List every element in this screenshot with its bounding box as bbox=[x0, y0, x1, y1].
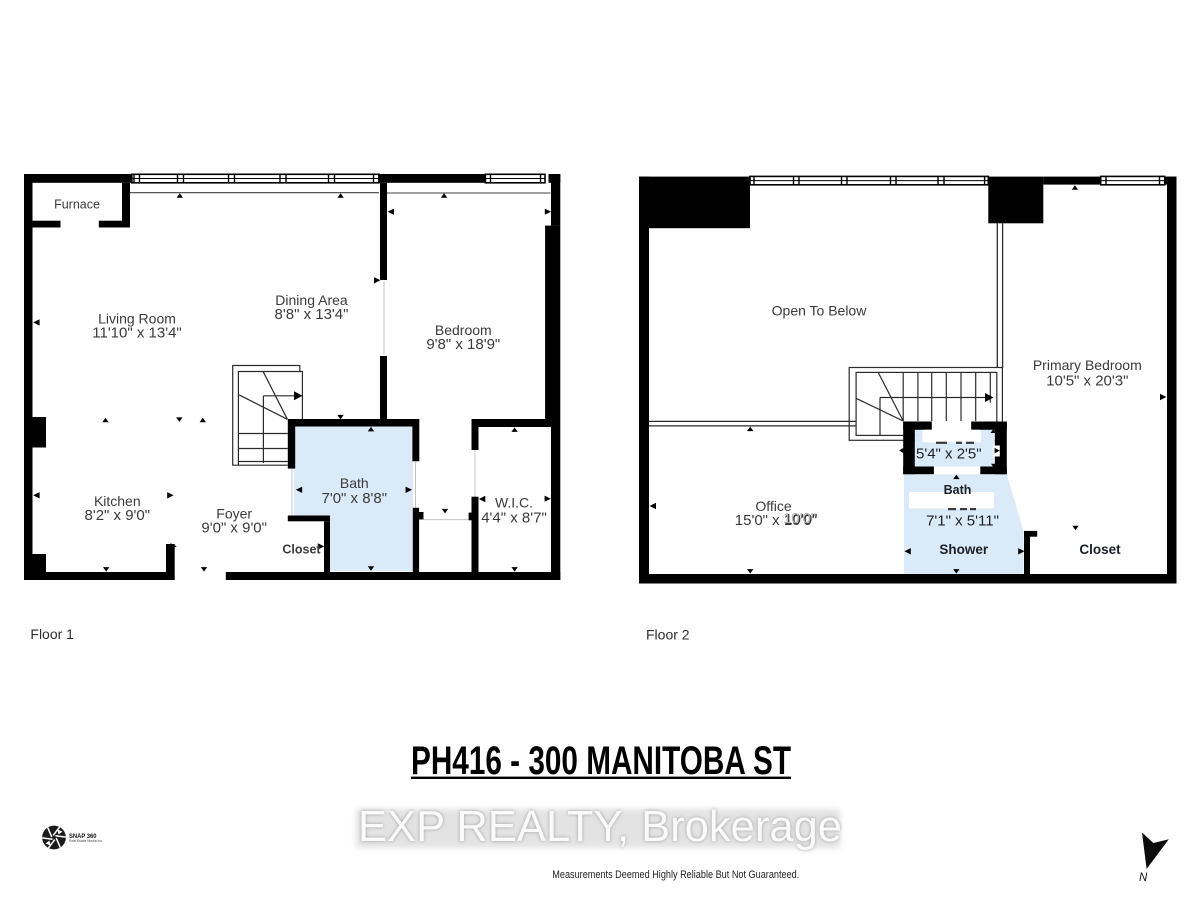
svg-text:7'1" x 5'11": 7'1" x 5'11" bbox=[926, 512, 999, 529]
svg-text:Floor 1: Floor 1 bbox=[30, 626, 74, 642]
svg-text:Open To Below: Open To Below bbox=[772, 303, 868, 319]
svg-text:Bath: Bath bbox=[944, 483, 972, 497]
svg-text:N: N bbox=[1139, 872, 1148, 884]
svg-text:9'0" x 9'0": 9'0" x 9'0" bbox=[201, 519, 267, 536]
svg-text:10'5" x 20'3": 10'5" x 20'3" bbox=[1046, 373, 1128, 390]
svg-text:Measurements Deemed Highly Rel: Measurements Deemed Highly Reliable But … bbox=[552, 869, 799, 881]
svg-text:10'0": 10'0" bbox=[783, 510, 816, 527]
svg-text:Bath: Bath bbox=[340, 475, 369, 491]
svg-text:8'8" x 13'4": 8'8" x 13'4" bbox=[275, 306, 349, 323]
svg-text:Floor 2: Floor 2 bbox=[646, 627, 690, 643]
svg-text:Primary Bedroom: Primary Bedroom bbox=[1033, 357, 1142, 373]
svg-text:PH416 - 300 MANITOBA ST: PH416 - 300 MANITOBA ST bbox=[411, 739, 791, 783]
svg-text:Real Estate Media Inc.: Real Estate Media Inc. bbox=[69, 839, 103, 843]
svg-text:7'0" x 8'8": 7'0" x 8'8" bbox=[322, 490, 388, 507]
svg-text:Furnace: Furnace bbox=[54, 198, 100, 212]
svg-text:EXP REALTY, Brokerage: EXP REALTY, Brokerage bbox=[358, 802, 842, 851]
svg-text:11'10" x 13'4": 11'10" x 13'4" bbox=[92, 325, 182, 342]
svg-text:Closet: Closet bbox=[1079, 542, 1121, 557]
svg-text:Shower: Shower bbox=[939, 542, 989, 557]
svg-text:W.I.C.: W.I.C. bbox=[495, 495, 533, 511]
svg-text:4'4" x 8'7": 4'4" x 8'7" bbox=[481, 510, 547, 527]
svg-text:5'4" x 2'5": 5'4" x 2'5" bbox=[916, 446, 982, 463]
svg-text:Closet: Closet bbox=[282, 542, 321, 556]
svg-text:9'8" x 18'9": 9'8" x 18'9" bbox=[426, 336, 500, 353]
svg-text:8'2" x 9'0": 8'2" x 9'0" bbox=[85, 507, 151, 524]
